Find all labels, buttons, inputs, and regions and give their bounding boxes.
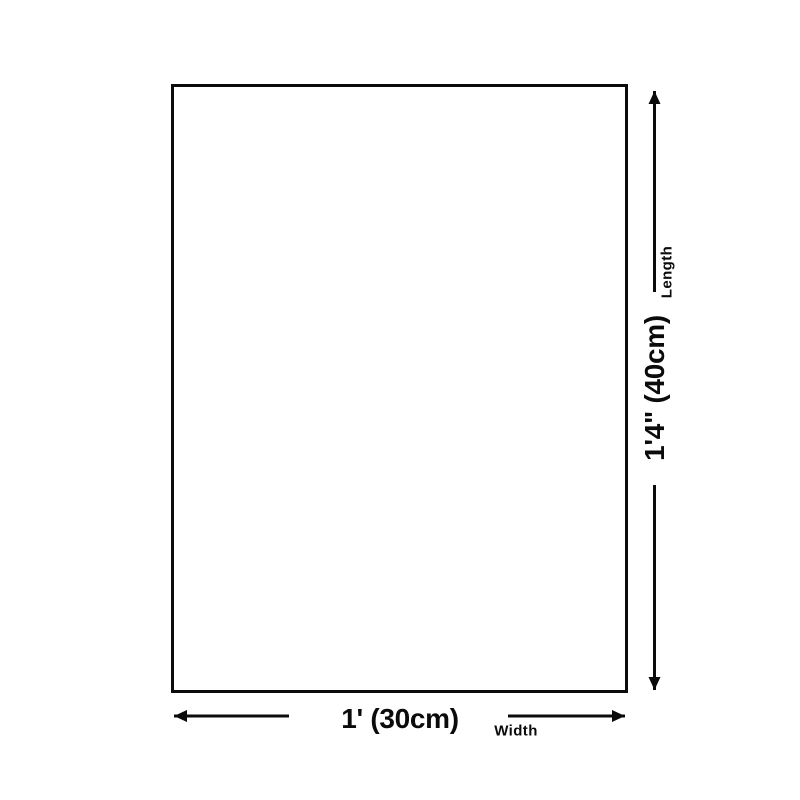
length-dimension-value: 1'4" (40cm) — [639, 315, 671, 461]
size-diagram: 1'4" (40cm) Length 1' (30cm) Width — [0, 0, 800, 800]
product-outline-rect — [173, 86, 627, 692]
width-axis-label: Width — [494, 723, 538, 740]
width-dimension-value: 1' (30cm) — [341, 703, 459, 735]
length-axis-label: Length — [659, 246, 676, 298]
dimension-diagram-canvas — [0, 0, 800, 800]
